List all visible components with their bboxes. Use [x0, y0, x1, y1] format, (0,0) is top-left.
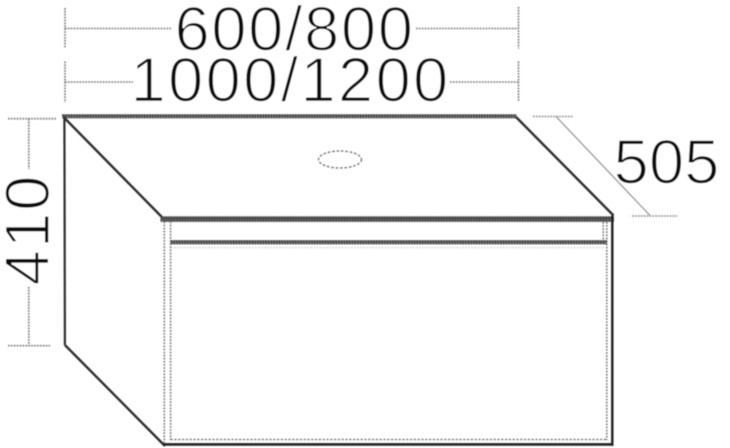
svg-text:1000/1200: 1000/1200 [131, 46, 451, 116]
svg-text:410: 410 [0, 174, 63, 286]
svg-text:505: 505 [614, 127, 720, 197]
